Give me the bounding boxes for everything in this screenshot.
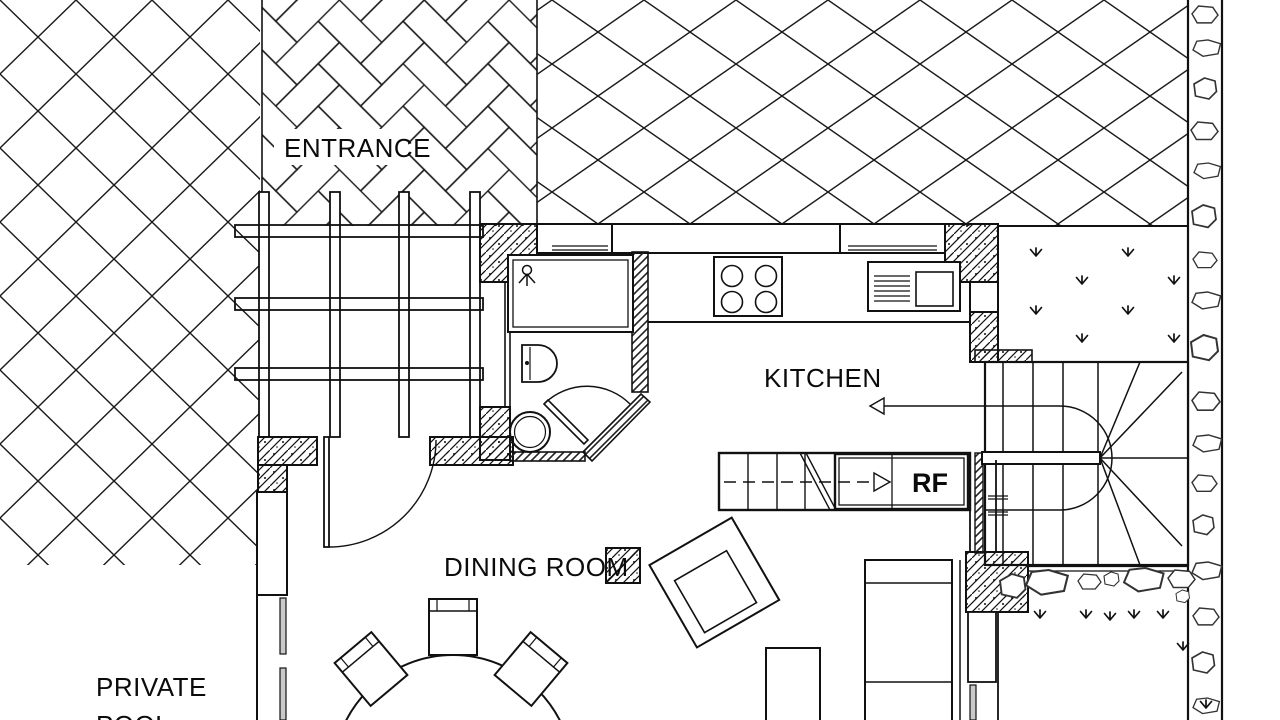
path-grass-tufts (1035, 610, 1212, 708)
toilet (522, 345, 557, 382)
bathroom (505, 252, 650, 461)
garden-grass-area (998, 226, 1188, 362)
wall-bathroom-south (510, 452, 585, 461)
pergola-beams (235, 225, 483, 380)
floor-plan-page: ENTRANCE KITCHEN DINING ROOM PRIVATE POO… (0, 0, 1280, 720)
window-kitchen-east (970, 282, 998, 312)
side-table (766, 648, 820, 720)
glazed-wall-west (257, 595, 286, 720)
window-dining-east (968, 612, 996, 682)
vanity-counter (508, 255, 633, 332)
entrance-door-leaf (324, 437, 329, 547)
pool-side-paving (0, 0, 260, 565)
washbasin (510, 412, 550, 452)
private-pool-label-line2: POOL (96, 710, 170, 720)
arrow-left-icon (870, 398, 884, 414)
private-pool-label-line1: PRIVATE (96, 672, 207, 702)
bathroom-door-swing (545, 386, 630, 404)
dining-chair-north (429, 599, 477, 655)
pier-entrance-west (258, 437, 317, 465)
armchair (649, 518, 779, 648)
stair-wall-top (975, 350, 1032, 362)
window-kitchen-north (840, 224, 945, 253)
pergola-posts (259, 192, 480, 437)
terrace-chevron-paving (537, 0, 1188, 226)
built-in-appliance (868, 262, 960, 311)
entrance-door-swing (329, 440, 436, 547)
pier-bath-southwest (480, 407, 510, 460)
kitchen-label: KITCHEN (764, 363, 882, 393)
stair-wall-west (975, 453, 983, 553)
entrance-label: ENTRANCE (284, 133, 431, 163)
pergola (235, 192, 483, 437)
floor-plan-drawing: ENTRANCE KITCHEN DINING ROOM PRIVATE POO… (0, 0, 1280, 720)
refrigerator-label: RF (912, 468, 948, 498)
stone-border-strip (1188, 0, 1222, 720)
dining-chair-west (335, 632, 408, 706)
wall-bathroom-east (632, 252, 648, 392)
stair-landing-rail (982, 452, 1100, 464)
bathroom-door-leaf (544, 400, 588, 444)
entrance-door (324, 437, 436, 547)
wall-west (257, 492, 287, 595)
stepping-stones (1000, 568, 1195, 603)
wall-kitchen-north (612, 224, 840, 253)
dining-chair-east (495, 632, 568, 706)
sofa (865, 560, 960, 720)
dining-room-label: DINING ROOM (444, 552, 629, 582)
stove (714, 257, 782, 316)
dining-room-area (333, 518, 960, 720)
window-bathroom-north (537, 224, 612, 253)
pier-west-lower (258, 465, 287, 492)
glazing-dining-east (970, 685, 976, 720)
wall-bathroom-chamfer (583, 394, 650, 461)
